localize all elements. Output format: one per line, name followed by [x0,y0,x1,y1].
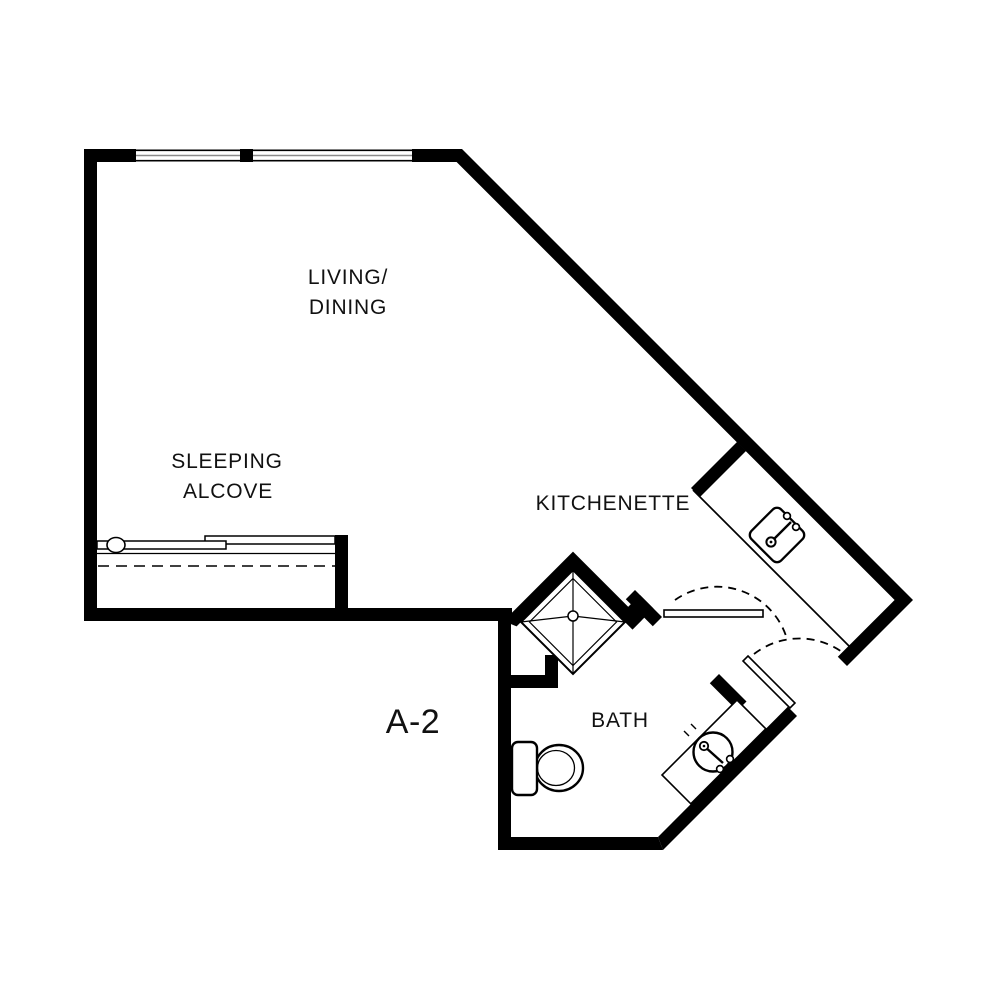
label-bath: BATH [591,709,649,732]
wall-left [84,149,97,621]
bath-door [664,587,787,639]
shower-icon [521,570,625,674]
label-sleeping-line1: SLEEPING [171,450,282,473]
wall-shower-stub-horizontal [498,675,558,688]
toilet-icon [512,742,583,795]
label-unit-number: A-2 [386,703,440,741]
label-sleeping-line2: ALCOVE [183,480,273,503]
entry-door-leaf [743,656,795,708]
wall-bath-bottom [498,837,663,850]
vanity-sink-icon [694,733,734,773]
closet-door-handle [107,538,125,553]
entry-door-swing-arc [754,638,842,654]
closet [97,536,335,566]
wall-diagonal-ne [457,149,913,600]
wall-diagonal-sw-upper [838,600,913,666]
wall-kitchenette-stub [691,442,746,497]
labels: LIVING/ DINING SLEEPING ALCOVE KITCHENET… [171,266,690,741]
windows [136,149,412,162]
window-2 [253,149,412,162]
label-living-line1: LIVING/ [308,266,388,289]
bath-door-leaf [664,610,763,617]
shower-drain [568,611,578,621]
label-living-line2: DINING [309,296,387,319]
wall-closet-stub [335,535,348,621]
wall-bath-west [498,621,511,850]
label-kitchenette: KITCHENETTE [536,492,691,515]
entry-door [743,638,842,708]
window-1 [136,149,240,162]
wall-bottom-main [84,608,512,621]
kitchen-sink-icon [747,505,806,564]
floor-plan: LIVING/ DINING SLEEPING ALCOVE KITCHENET… [0,0,1000,1000]
floor-plan-svg: LIVING/ DINING SLEEPING ALCOVE KITCHENET… [0,0,1000,1000]
